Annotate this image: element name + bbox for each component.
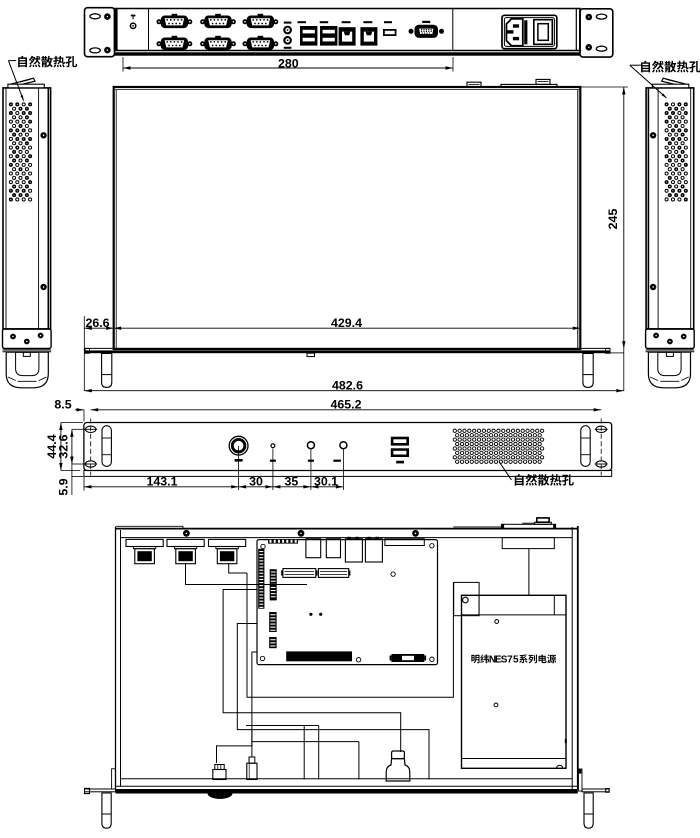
- svg-text:5.9: 5.9: [57, 478, 71, 495]
- svg-text:280: 280: [278, 56, 299, 70]
- svg-text:8.5: 8.5: [54, 398, 71, 412]
- svg-text:32.6: 32.6: [57, 434, 71, 458]
- svg-text:5: 5: [513, 654, 519, 665]
- svg-text:482.6: 482.6: [332, 378, 363, 392]
- svg-text:245: 245: [606, 209, 620, 230]
